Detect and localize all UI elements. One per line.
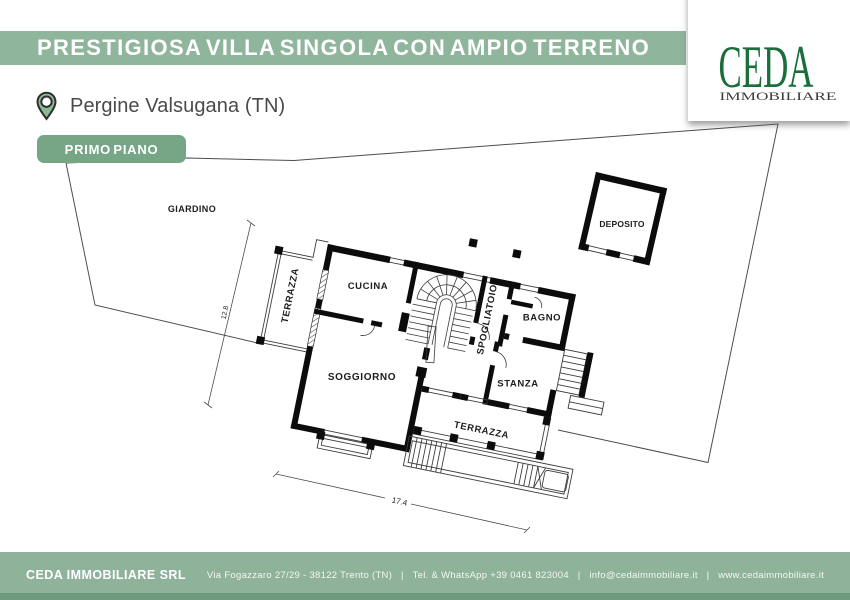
svg-text:IMMOBILIARE: IMMOBILIARE xyxy=(720,91,837,103)
svg-text:BAGNO: BAGNO xyxy=(523,313,561,324)
svg-text:STANZA: STANZA xyxy=(497,379,538,390)
svg-text:CUCINA: CUCINA xyxy=(348,281,389,292)
svg-text:SOGGIORNO: SOGGIORNO xyxy=(328,372,396,383)
svg-text:DEPOSITO: DEPOSITO xyxy=(599,219,645,229)
svg-text:17.4: 17.4 xyxy=(391,495,409,507)
svg-text:GIARDINO: GIARDINO xyxy=(168,204,216,214)
